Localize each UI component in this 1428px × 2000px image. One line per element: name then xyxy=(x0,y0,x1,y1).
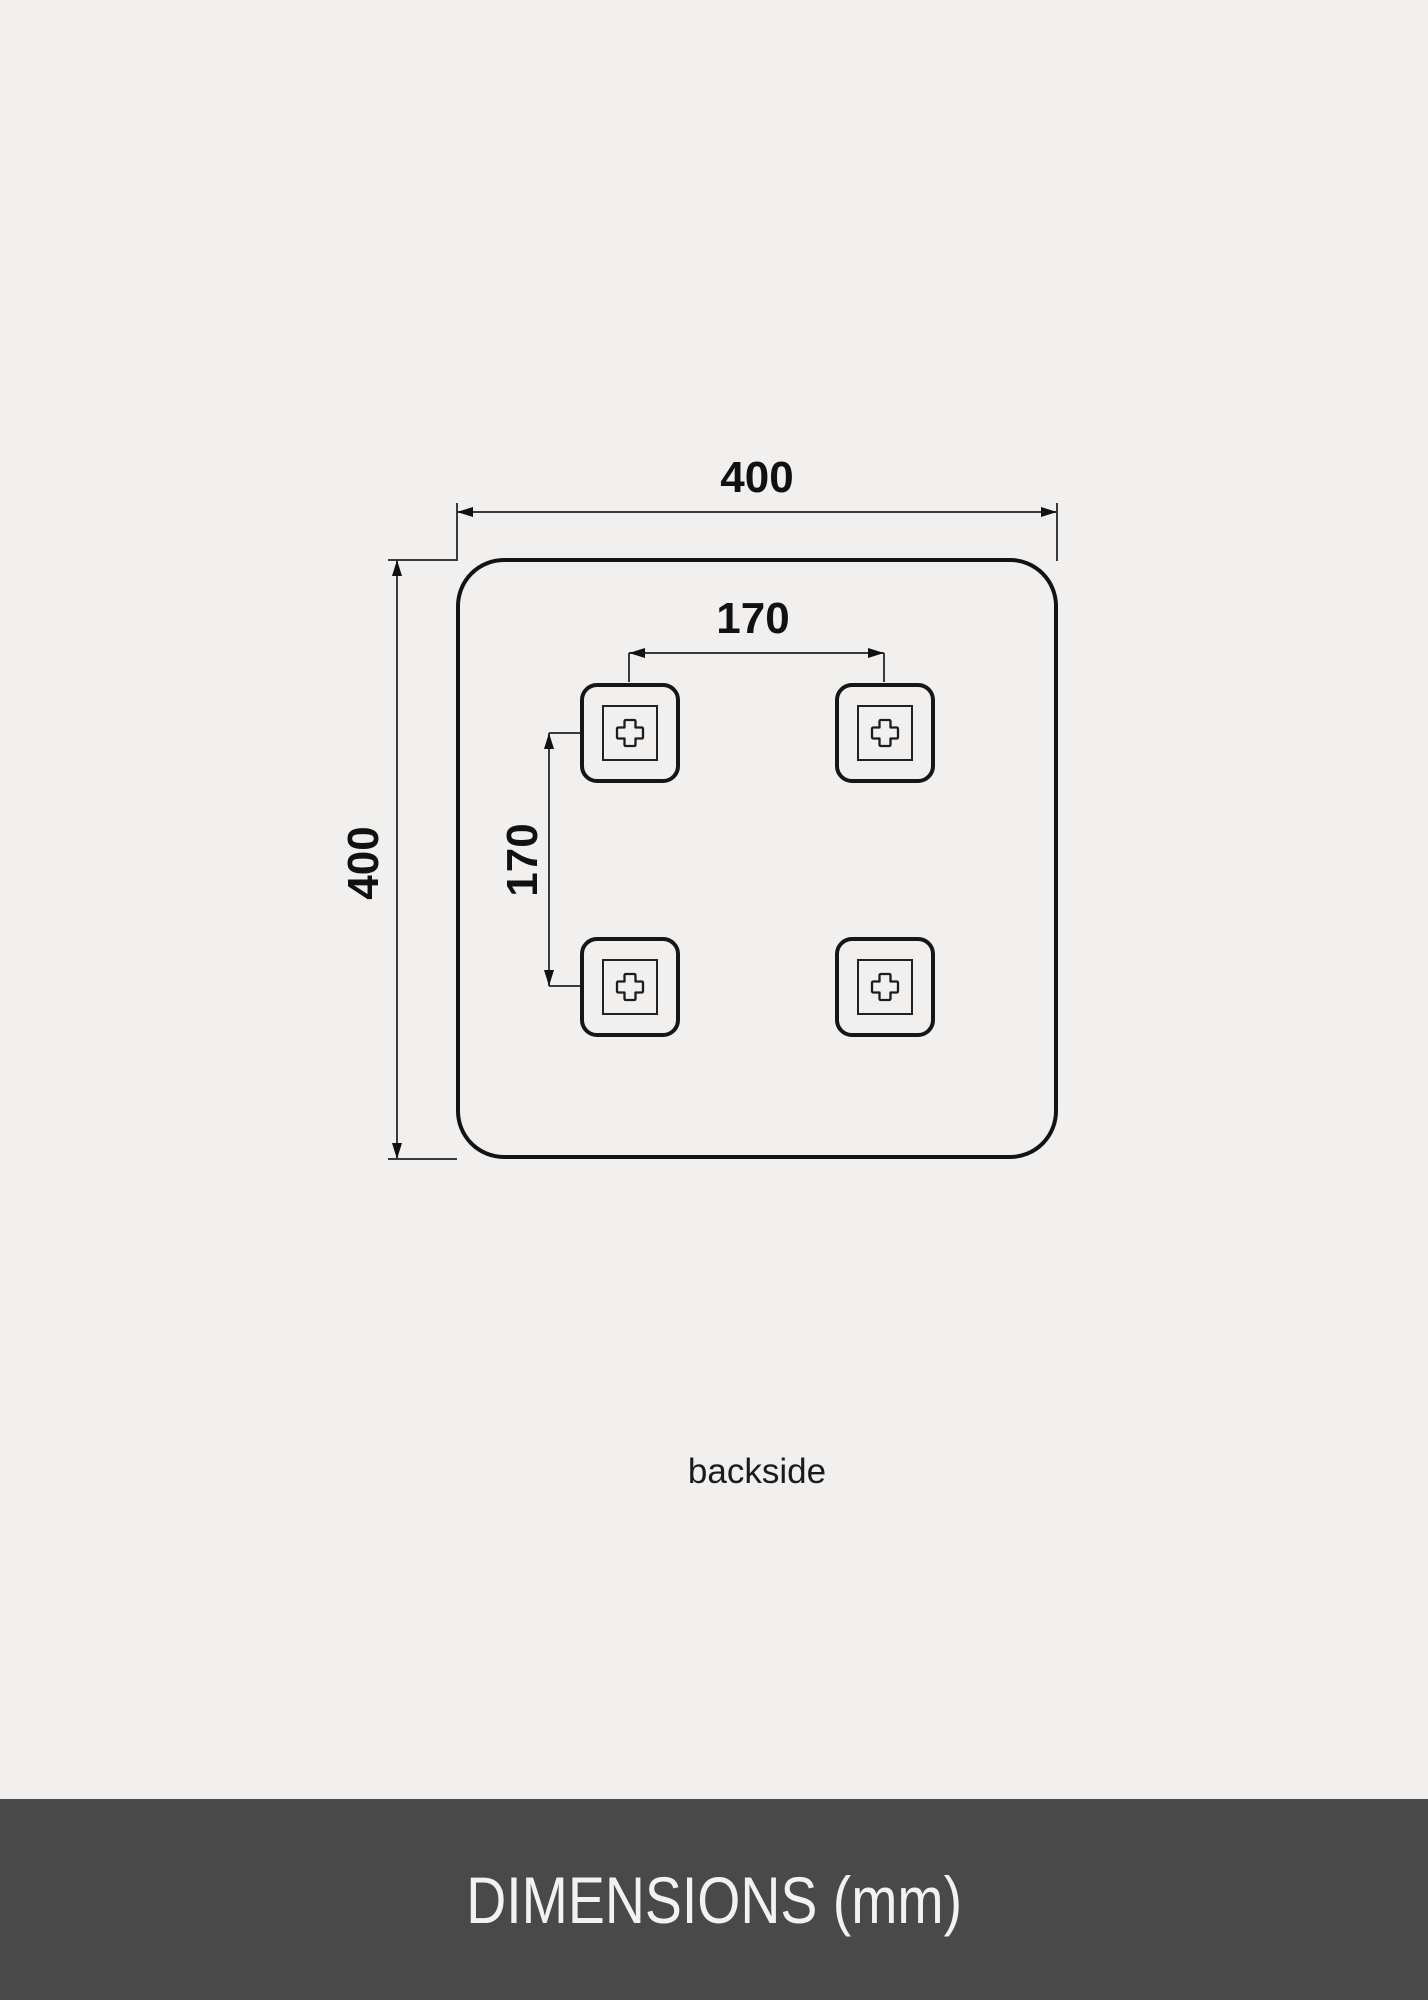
mount-bracket-top-left xyxy=(580,683,680,783)
plus-icon xyxy=(869,971,901,1003)
bracket-inner-square xyxy=(602,959,658,1015)
dimension-sheet: 400 400 170 170 backside DIMENSIONS (mm) xyxy=(0,0,1428,2000)
dimension-line-bracket-spacing-horizontal xyxy=(629,652,884,654)
arrowhead-up-icon xyxy=(392,560,402,576)
mount-bracket-top-right xyxy=(835,683,935,783)
arrowhead-right-icon xyxy=(868,648,884,658)
dimension-line-height xyxy=(396,560,398,1159)
arrowhead-up-icon xyxy=(544,733,554,749)
arrowhead-down-icon xyxy=(392,1143,402,1159)
footer-bar: DIMENSIONS (mm) xyxy=(0,1799,1428,2000)
view-caption: backside xyxy=(557,1452,957,1492)
mount-bracket-bottom-right xyxy=(835,937,935,1037)
arrowhead-left-icon xyxy=(457,507,473,517)
mount-bracket-bottom-left xyxy=(580,937,680,1037)
bracket-inner-square xyxy=(857,705,913,761)
plus-icon xyxy=(614,717,646,749)
height-dimension-label: 400 xyxy=(341,803,387,923)
bracket-spacing-horizontal-label: 170 xyxy=(693,596,813,642)
width-dimension-label: 400 xyxy=(697,455,817,501)
footer-title: DIMENSIONS (mm) xyxy=(466,1862,962,1938)
dimension-line-width xyxy=(457,511,1057,513)
bracket-spacing-vertical-label: 170 xyxy=(500,800,546,920)
arrowhead-left-icon xyxy=(629,648,645,658)
arrowhead-right-icon xyxy=(1041,507,1057,517)
arrowhead-down-icon xyxy=(544,970,554,986)
bracket-inner-square xyxy=(602,705,658,761)
plus-icon xyxy=(614,971,646,1003)
plus-icon xyxy=(869,717,901,749)
dimension-line-bracket-spacing-vertical xyxy=(548,733,550,986)
bracket-inner-square xyxy=(857,959,913,1015)
